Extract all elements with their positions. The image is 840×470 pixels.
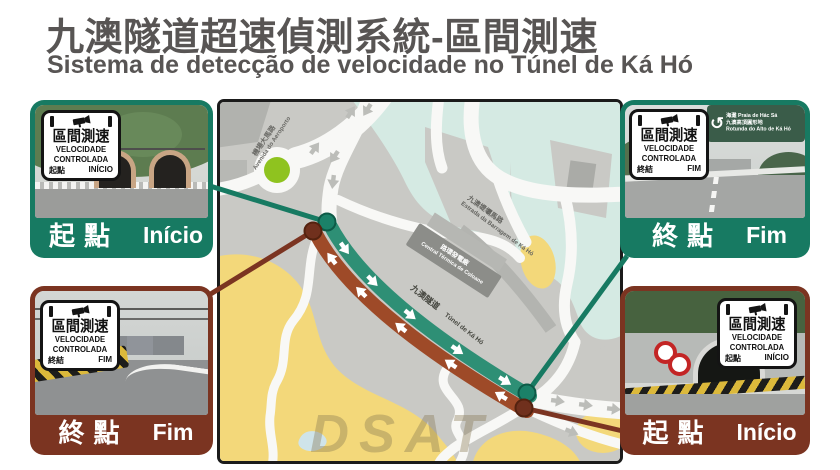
panel-caption: 終點 Fim	[625, 218, 805, 253]
sign-top-row	[634, 113, 704, 127]
sign-post-bar	[107, 306, 111, 317]
sign-top-row	[45, 304, 115, 318]
caption-pt: Fim	[153, 421, 194, 444]
road-sign-line3: Rotunda do Alto de Ká Hó	[726, 127, 791, 134]
tunnel-portal-right	[149, 150, 191, 188]
road	[625, 394, 805, 415]
sign-line2: CONTROLADA	[726, 343, 789, 353]
sign-post-bar	[696, 115, 700, 126]
sign-point-zh: 起點	[49, 165, 65, 176]
sign-post-bar	[784, 304, 788, 315]
sign-line2: CONTROLADA	[50, 155, 113, 165]
panel-caption: 終點 Fim	[35, 415, 208, 450]
panel-end-west: 區間測速 VELOCIDADE CONTROLADA 終結 FIM 終點 Fim	[30, 286, 213, 455]
sign-point-pt: INÍCIO	[89, 165, 113, 176]
panel-caption: 起點 Início	[35, 218, 208, 253]
map-roundabout-center	[264, 157, 290, 183]
sign-point-zh: 起點	[725, 353, 741, 364]
speed-camera-icon	[68, 305, 92, 318]
sign-top-row	[46, 114, 116, 128]
page-subtitle: Sistema de detecção de velocidade no Tún…	[47, 51, 693, 80]
panel-start-south: 區間測速 VELOCIDADE CONTROLADA 起點 INÍCIO 起點 …	[620, 286, 810, 455]
sign-line2: CONTROLADA	[638, 154, 701, 164]
speed-sign-end: 區間測速 VELOCIDADE CONTROLADA 終結 FIM	[629, 109, 709, 180]
photo-tunnel-south-entrance: 區間測速 VELOCIDADE CONTROLADA 起點 INÍCIO	[625, 291, 805, 415]
map: 路環發電廠 Central Térmica de Coloane	[217, 99, 623, 464]
photo-tunnel-north-entrance: 區間測速 VELOCIDADE CONTROLADA 起點 INÍCIO	[35, 105, 208, 218]
map-canvas: 路環發電廠 Central Térmica de Coloane	[220, 102, 620, 461]
roundabout-road-sign: ↺ 海灘 Praia de Hác Sá 九澳高頂圓形地 Rotunda do …	[707, 105, 805, 142]
sign-post-bar	[50, 116, 54, 127]
caption-zh: 終點	[50, 420, 129, 446]
photo-road-end-east: ↺ 海灘 Praia de Hác Sá 九澳高頂圓形地 Rotunda do …	[625, 105, 805, 218]
caption-zh: 起點	[40, 223, 119, 249]
caption-pt: Início	[143, 224, 203, 247]
dsat-watermark: DSAT	[310, 404, 493, 461]
speed-camera-icon	[745, 303, 769, 316]
panel-start-north: 區間測速 VELOCIDADE CONTROLADA 起點 INÍCIO 起點 …	[30, 100, 213, 258]
sign-title: 區間測速	[724, 316, 791, 333]
sign-point-zh: 終結	[637, 164, 653, 175]
sign-title: 區間測速	[47, 318, 114, 335]
panel-end-east: ↺ 海灘 Praia de Hác Sá 九澳高頂圓形地 Rotunda do …	[620, 100, 810, 258]
panel-caption: 起點 Início	[625, 415, 805, 450]
sign-point-zh: 終結	[48, 355, 64, 366]
caption-pt: Fim	[746, 224, 787, 247]
poster: 九澳隧道超速偵測系統-區間測速 Sistema de detecção de v…	[0, 0, 840, 470]
sign-title: 區間測速	[48, 128, 115, 145]
photo-road-end-west: 區間測速 VELOCIDADE CONTROLADA 終結 FIM	[35, 291, 208, 415]
sign-post-bar	[108, 116, 112, 127]
caption-pt: Início	[736, 421, 796, 444]
sign-title: 區間測速	[636, 127, 703, 144]
sign-point-pt: FIM	[687, 164, 701, 175]
caption-zh: 起點	[633, 420, 712, 446]
sign-top-row	[722, 302, 792, 316]
speed-sign-end: 區間測速 VELOCIDADE CONTROLADA 終結 FIM	[40, 300, 120, 371]
road	[35, 185, 208, 218]
sign-post-bar	[49, 306, 53, 317]
sign-line2: CONTROLADA	[49, 345, 112, 355]
roundabout-arrow-icon: ↺	[710, 115, 724, 132]
speed-camera-icon	[69, 115, 93, 128]
sign-post-bar	[726, 304, 730, 315]
speed-sign-start: 區間測速 VELOCIDADE CONTROLADA 起點 INÍCIO	[717, 298, 797, 369]
sign-point-pt: FIM	[98, 355, 112, 366]
sign-point-pt: INÍCIO	[765, 353, 789, 364]
speed-sign-start: 區間測速 VELOCIDADE CONTROLADA 起點 INÍCIO	[41, 110, 121, 181]
sign-post-bar	[638, 115, 642, 126]
caption-zh: 終點	[643, 223, 722, 249]
speed-camera-icon	[657, 114, 681, 127]
